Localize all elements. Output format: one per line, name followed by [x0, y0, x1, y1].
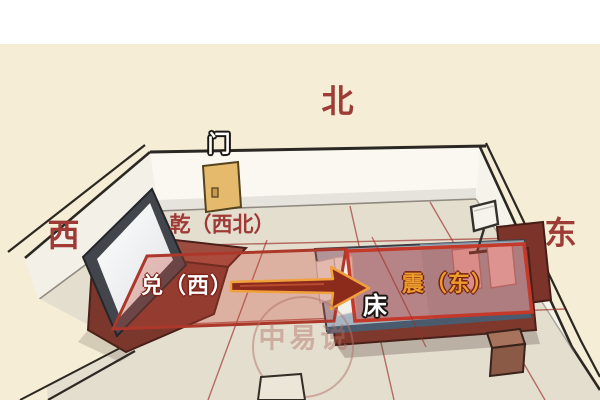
door-panel: [203, 162, 241, 212]
bed-label: 床: [363, 295, 387, 319]
watermark-text: 中易说: [259, 326, 352, 353]
zone-northwest-label: 乾（西北）: [170, 215, 275, 236]
nightstand: [487, 329, 525, 376]
compass-east-label: 东: [544, 217, 577, 249]
compass-west-label: 西: [47, 219, 80, 251]
compass-north-label: 北: [321, 85, 354, 117]
floor-mat-shape: [258, 374, 305, 400]
nightstand-front: [490, 344, 525, 376]
door-knob: [212, 188, 218, 197]
zone-east-label: 震（东）: [402, 273, 494, 295]
floor-mat: [258, 374, 305, 400]
door-label: 门: [208, 133, 231, 156]
door: [203, 162, 241, 212]
zone-west-label: 兑（西）: [141, 275, 233, 297]
feng-shui-bedroom-diagram: 北 西 东 门 乾（西北） 兑（西） 震（东） 床 中易说: [0, 0, 600, 400]
